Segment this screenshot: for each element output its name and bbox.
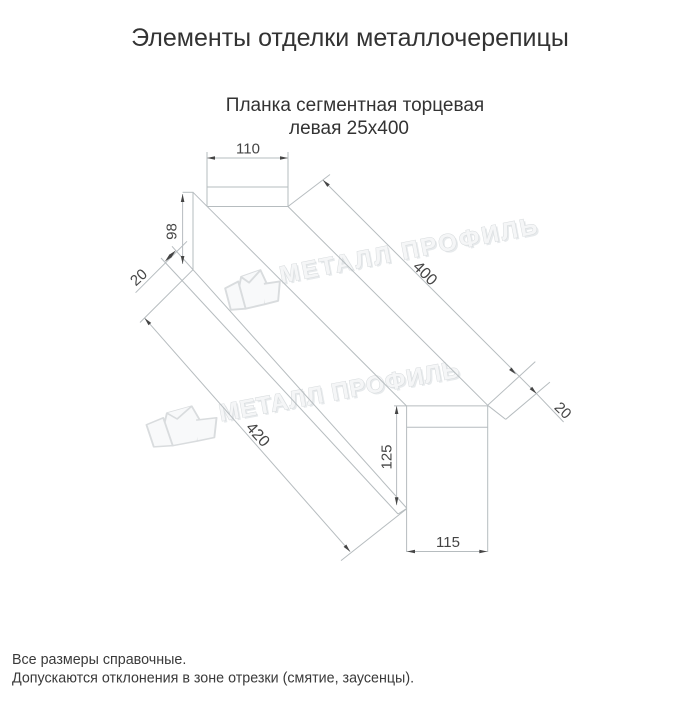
svg-text:125: 125	[379, 444, 396, 469]
svg-text:Элементы отделки металлочерепи: Элементы отделки металлочерепицы	[131, 24, 569, 52]
svg-text:Все размеры справочные.: Все размеры справочные.	[12, 652, 186, 668]
svg-text:115: 115	[436, 534, 460, 551]
svg-text:Допускаются отклонения в зоне: Допускаются отклонения в зоне отрезки (с…	[12, 671, 414, 687]
svg-text:98: 98	[164, 223, 181, 240]
svg-text:Планка сегментная торцевая: Планка сегментная торцевая	[226, 95, 484, 116]
svg-text:левая 25х400: левая 25х400	[289, 118, 409, 139]
svg-text:110: 110	[236, 141, 260, 158]
